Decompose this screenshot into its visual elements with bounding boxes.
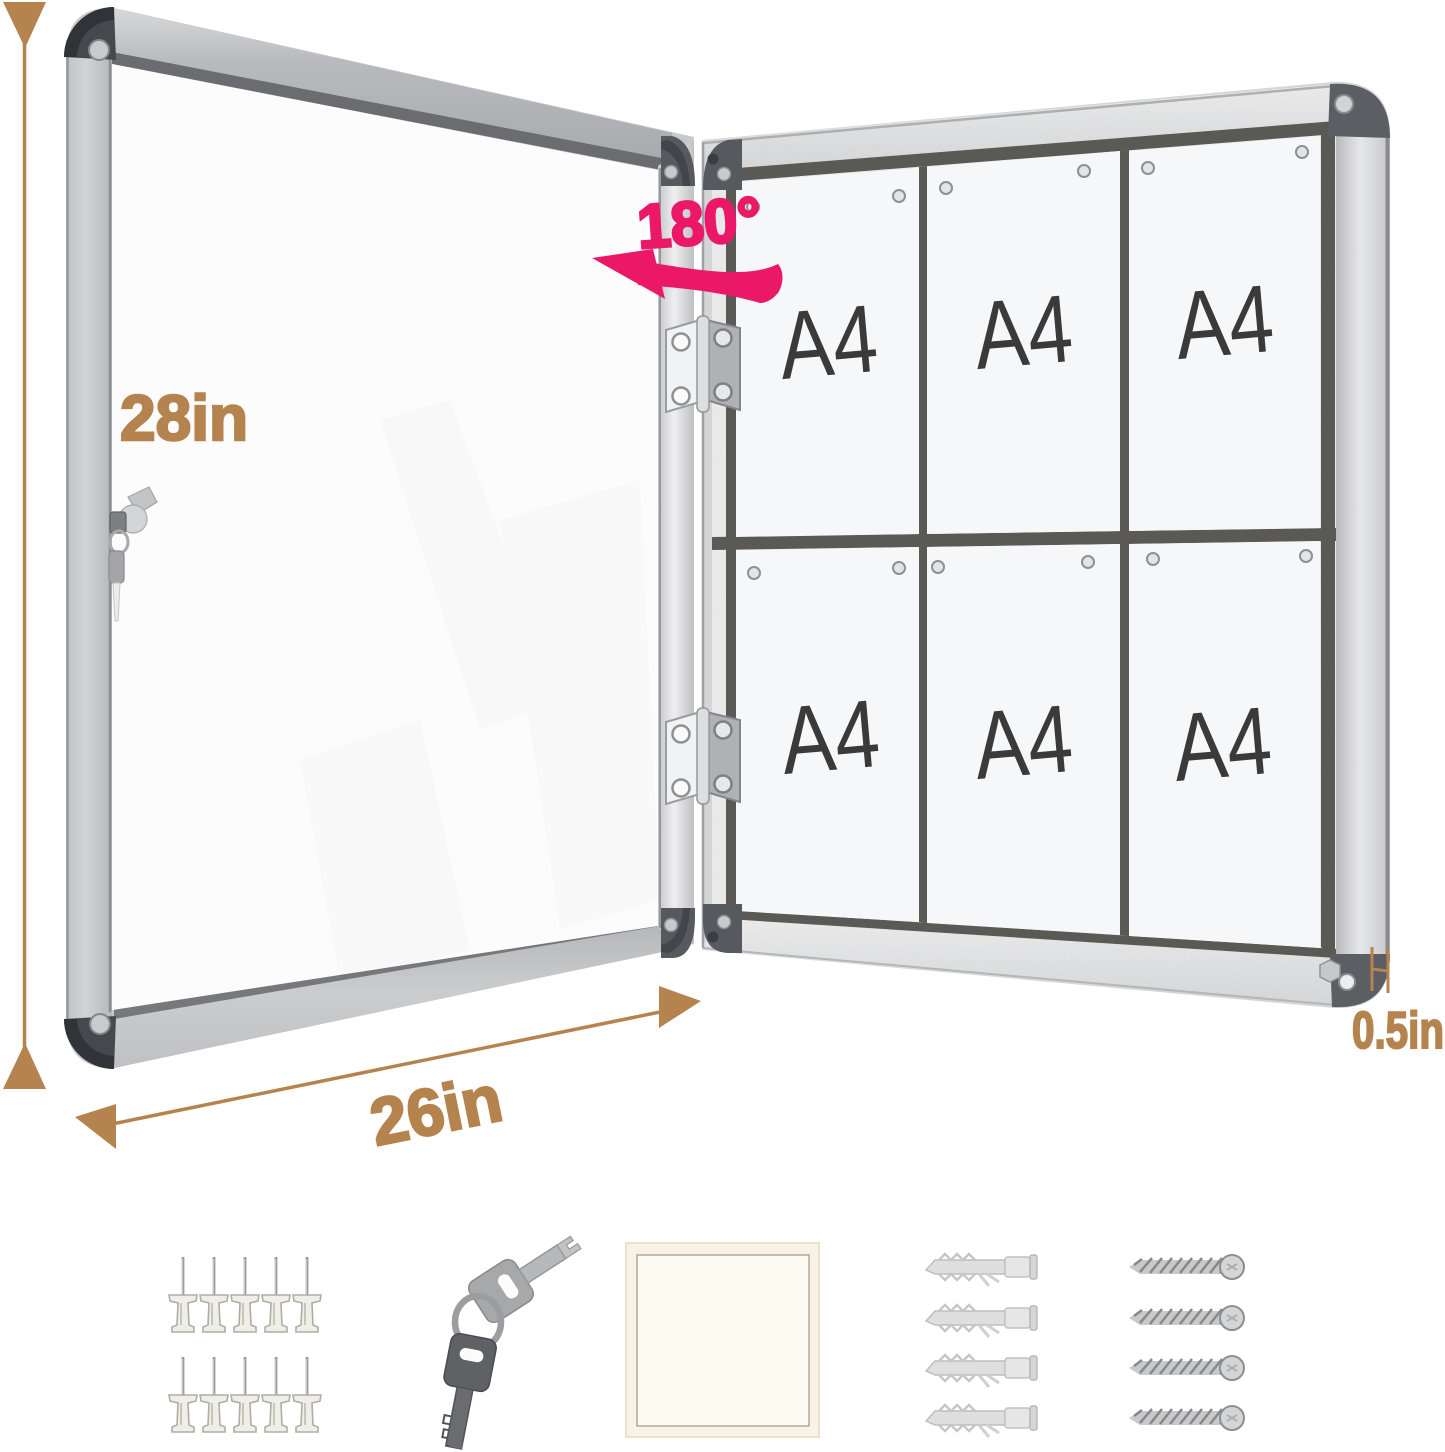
svg-text:A4: A4 bbox=[970, 685, 1077, 800]
svg-text:28in: 28in bbox=[120, 382, 248, 454]
svg-text:A4: A4 bbox=[1171, 265, 1278, 380]
svg-text:A4: A4 bbox=[777, 680, 884, 795]
svg-text:0.5in: 0.5in bbox=[1352, 1002, 1444, 1060]
svg-text:A4: A4 bbox=[1169, 687, 1276, 802]
svg-text:A4: A4 bbox=[775, 285, 882, 400]
svg-text:180°: 180° bbox=[635, 185, 764, 262]
svg-text:A4: A4 bbox=[970, 275, 1077, 390]
